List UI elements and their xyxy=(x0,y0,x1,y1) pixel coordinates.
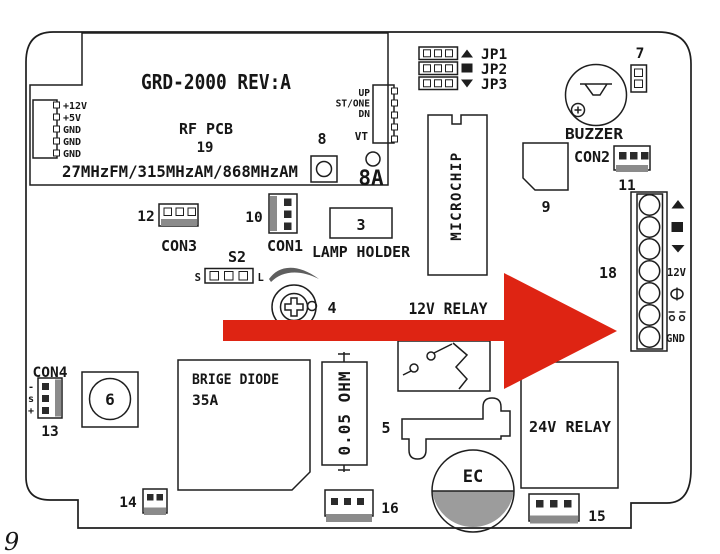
plus-terminal-cross xyxy=(575,107,582,114)
relay24-label: 24V RELAY xyxy=(529,418,612,436)
down-triangle-icon xyxy=(461,80,473,88)
pin xyxy=(435,50,442,57)
red-arrow-annotation xyxy=(223,273,617,389)
rf-side-connector xyxy=(373,85,394,143)
pcb-diagram: GRD-2000 REV:A RF PCB 19 27MHzFM/315MHzA… xyxy=(0,0,720,554)
con4-pin-label: s xyxy=(28,394,34,405)
con1: 10 CON1 xyxy=(245,194,303,255)
component-8-body xyxy=(311,156,337,182)
component-9-body xyxy=(523,143,568,190)
fuse-holder: 5 xyxy=(381,398,510,459)
pin xyxy=(635,80,643,88)
buzzer: BUZZER xyxy=(565,65,627,144)
pin xyxy=(392,136,398,142)
pin xyxy=(630,152,638,160)
adjust-arc-icon xyxy=(269,268,319,282)
pin xyxy=(54,150,60,156)
up-triangle-icon xyxy=(461,50,473,58)
power-pin-label: +5V xyxy=(63,113,81,124)
pin xyxy=(446,80,453,87)
terminal xyxy=(639,217,659,237)
pin xyxy=(536,500,544,508)
con2-label: CON2 xyxy=(574,148,610,166)
relay12-label: 12V RELAY xyxy=(409,299,488,318)
ref-8a: 8A xyxy=(358,166,384,190)
pin xyxy=(54,138,60,144)
pin xyxy=(619,152,627,160)
terminal xyxy=(639,195,659,215)
pin xyxy=(424,50,431,57)
pin xyxy=(284,199,292,207)
con3: 12 CON3 xyxy=(137,204,198,255)
screw-cross-icon xyxy=(285,298,303,316)
con4-side xyxy=(55,380,61,417)
terminal-gnd-label: GND xyxy=(666,333,685,345)
con2: CON2 11 xyxy=(574,146,650,194)
terminal xyxy=(639,239,659,259)
pin xyxy=(435,65,442,72)
power-pin-label: GND xyxy=(63,149,81,160)
component-8-hole xyxy=(317,162,332,177)
con4-pin-label: + xyxy=(28,406,34,417)
jp3-label: JP3 xyxy=(481,77,507,93)
pin xyxy=(344,498,351,505)
con3-footer xyxy=(161,219,197,226)
ref-9: 9 xyxy=(541,198,550,216)
s2-l-label: L xyxy=(258,272,264,284)
pin xyxy=(392,100,398,106)
up-triangle-icon xyxy=(672,200,685,209)
pot-tab xyxy=(308,302,317,311)
terminal xyxy=(639,327,659,347)
pin xyxy=(392,88,398,94)
led-8a xyxy=(366,152,380,166)
con1-side xyxy=(270,196,277,231)
buzzer-label: BUZZER xyxy=(565,125,624,143)
pot-ref: 4 xyxy=(327,299,336,317)
terminal-block: 18 12V GND xyxy=(599,192,687,351)
pin xyxy=(239,272,248,281)
lamp-icon xyxy=(671,288,683,301)
fuse-ref: 5 xyxy=(381,419,390,437)
microchip-label: MICROCHIP xyxy=(449,151,465,240)
pin xyxy=(42,407,49,414)
btn-vt-label: VT xyxy=(355,130,369,143)
rf-module: GRD-2000 REV:A RF PCB 19 27MHzFM/315MHzA… xyxy=(30,33,398,190)
microchip: MICROCHIP xyxy=(428,115,487,275)
filled-square-icon xyxy=(462,64,473,73)
bridge-diode-name: BRIGE DIODE xyxy=(192,372,279,388)
pin xyxy=(446,50,453,57)
con1-label: CON1 xyxy=(267,237,303,255)
pin xyxy=(424,80,431,87)
bridge-diode-rating: 35A xyxy=(192,393,218,409)
fuse-holder-body xyxy=(402,398,510,459)
rf-name: RF PCB xyxy=(179,120,233,138)
pin xyxy=(54,114,60,120)
pin xyxy=(564,500,572,508)
coil-zigzag xyxy=(453,343,467,389)
ref-8: 8 xyxy=(317,130,326,148)
ref-7: 7 xyxy=(636,46,645,62)
connector-15-footer xyxy=(530,516,578,524)
contact-dot xyxy=(670,316,675,321)
ec-label: EC xyxy=(463,467,483,487)
speaker-icon xyxy=(580,84,612,95)
connector-16: 16 xyxy=(325,490,399,522)
con2-footer xyxy=(616,165,648,172)
component-8 xyxy=(311,156,337,182)
s2-switch: S2 S L xyxy=(195,248,264,284)
s2-s-label: S xyxy=(195,272,201,284)
pin xyxy=(446,65,453,72)
resistor-label: 0.05 OHM xyxy=(335,370,354,455)
power-pin-label: GND xyxy=(63,125,81,136)
pin xyxy=(176,208,184,216)
rf-ref: 19 xyxy=(197,140,214,156)
rf-title: GRD-2000 REV:A xyxy=(141,70,291,94)
terminal xyxy=(639,305,659,325)
pin xyxy=(54,102,60,108)
connector-7 xyxy=(631,65,647,92)
pin xyxy=(424,65,431,72)
lamp-holder-label: LAMP HOLDER xyxy=(312,243,411,261)
s2-label: S2 xyxy=(228,248,246,266)
connector-15: 15 xyxy=(529,494,606,525)
ec-gray-half xyxy=(432,491,513,527)
btn-stone-label: ST/ONE xyxy=(336,99,371,110)
btn-up-label: UP xyxy=(359,88,371,99)
terminal-12v-label: 12V xyxy=(667,267,687,279)
pin xyxy=(331,498,338,505)
pin xyxy=(188,208,196,216)
connector-15-ref: 15 xyxy=(588,509,605,525)
component-9: 9 xyxy=(523,143,568,216)
terminal-block-ref: 18 xyxy=(599,264,617,282)
jumper-block: JP1 JP2 JP3 xyxy=(419,47,507,93)
ec-capacitor: EC xyxy=(432,450,514,532)
pin xyxy=(164,208,172,216)
contact-dot xyxy=(680,316,685,321)
terminal xyxy=(639,261,659,281)
pin xyxy=(357,498,364,505)
pin xyxy=(42,395,49,402)
con3-ref: 12 xyxy=(137,209,154,225)
contact-icon xyxy=(669,312,686,320)
lamp-holder: 3 LAMP HOLDER xyxy=(312,208,411,261)
relay24-component: 24V RELAY xyxy=(521,362,618,488)
page-number: 9 xyxy=(4,528,19,554)
pin xyxy=(284,211,292,219)
pin xyxy=(392,124,398,130)
connector-14: 14 xyxy=(119,489,167,515)
ref-6: 6 xyxy=(105,390,115,409)
jp2-label: JP2 xyxy=(481,62,507,78)
jp1-label: JP1 xyxy=(481,47,507,63)
component-6: 6 xyxy=(82,372,138,427)
terminal xyxy=(639,283,659,303)
con4: CON4 - s + 13 xyxy=(28,365,68,440)
con3-label: CON3 xyxy=(161,237,197,255)
pin xyxy=(147,494,154,501)
filled-square-icon xyxy=(672,222,684,232)
con1-ref: 10 xyxy=(245,210,262,226)
pin xyxy=(157,494,164,501)
lamp-holder-ref: 3 xyxy=(356,216,365,234)
power-pin-label: +12V xyxy=(63,101,87,112)
shunt-resistor: 0.05 OHM xyxy=(322,352,367,472)
pcb-diagram-page: GRD-2000 REV:A RF PCB 19 27MHzFM/315MHzA… xyxy=(0,0,720,554)
rf-frequencies: 27MHzFM/315MHzAM/868MHzAM xyxy=(62,162,298,181)
pin xyxy=(42,383,49,390)
switch-symbol-icon xyxy=(403,343,467,389)
switch-contact xyxy=(410,364,418,372)
pin xyxy=(392,112,398,118)
pin xyxy=(284,223,292,231)
down-triangle-icon xyxy=(672,245,685,253)
pin xyxy=(435,80,442,87)
switch-arm xyxy=(434,344,452,353)
connector-16-footer xyxy=(326,514,372,522)
power-connector: +12V +5V GND GND GND xyxy=(33,100,87,160)
connector-14-footer xyxy=(144,508,166,516)
pin xyxy=(635,69,643,77)
con4-pin-label: - xyxy=(28,382,34,393)
switch-contact xyxy=(427,352,435,360)
pin xyxy=(550,500,558,508)
switch-lead xyxy=(403,371,411,375)
connector-14-ref: 14 xyxy=(119,495,137,511)
power-pin-label: GND xyxy=(63,137,81,148)
pin xyxy=(210,272,219,281)
relay12-component xyxy=(398,341,490,391)
bridge-diode: BRIGE DIODE 35A xyxy=(178,360,310,490)
potentiometer: 4 xyxy=(269,268,337,329)
pin xyxy=(225,272,234,281)
pin xyxy=(54,126,60,132)
btn-dn-label: DN xyxy=(359,109,371,120)
con4-ref: 13 xyxy=(41,424,58,440)
connector-16-ref: 16 xyxy=(381,501,398,517)
pin xyxy=(641,152,649,160)
